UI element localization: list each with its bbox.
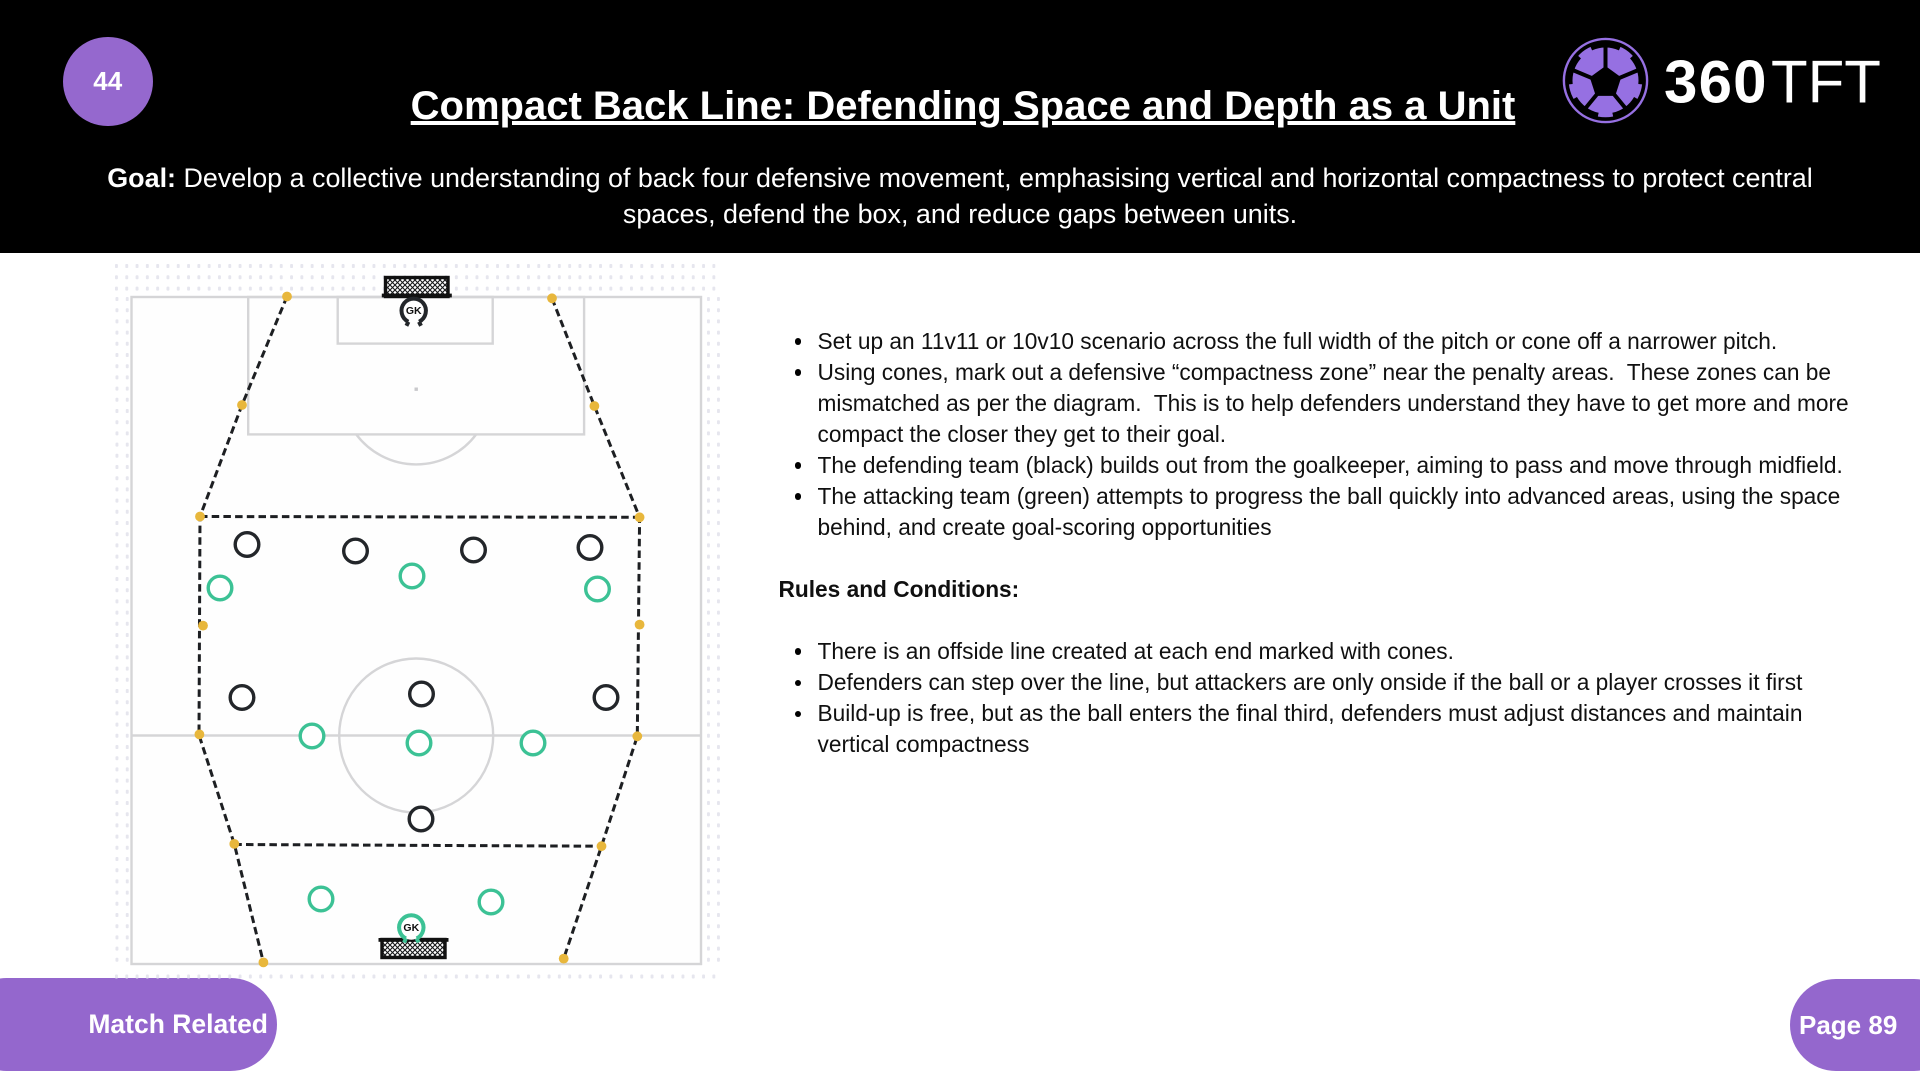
svg-text:360: 360 (1664, 48, 1768, 115)
svg-text:GK: GK (403, 922, 419, 934)
svg-text:GK: GK (406, 305, 422, 317)
svg-text:TFT: TFT (1771, 48, 1881, 115)
